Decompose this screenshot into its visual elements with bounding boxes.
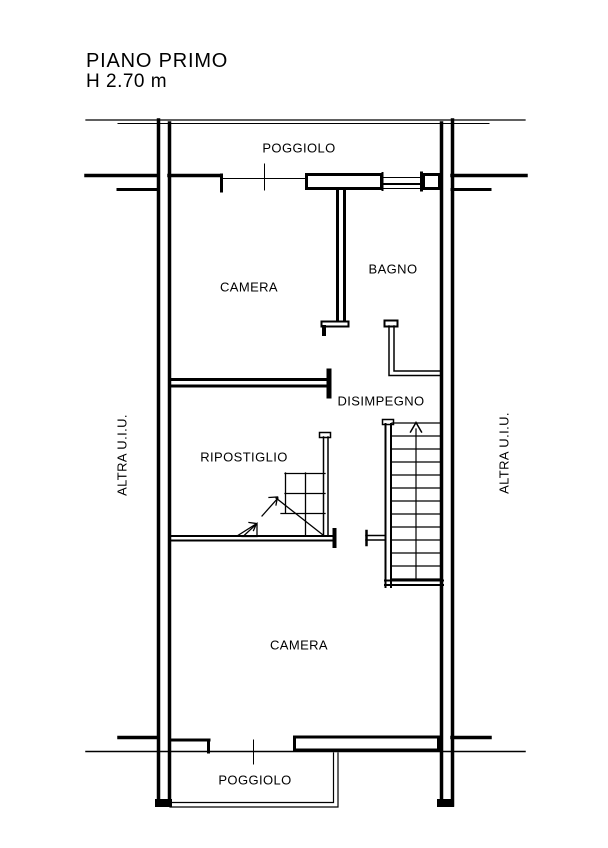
room-label-poggiolo-top: POGGIOLO <box>262 141 335 156</box>
unit-top-wall <box>169 164 440 191</box>
party-wall-right <box>437 120 454 807</box>
adjacent-unit-label-left: ALTRA U.I.U. <box>115 414 130 496</box>
boundary-lines <box>86 120 525 752</box>
neighbor-wall-stubs <box>86 176 526 738</box>
room-label-disimpegno: DISIMPEGNO <box>337 394 424 409</box>
room-label-camera-bottom: CAMERA <box>270 638 328 653</box>
room-label-ripostiglio: RIPOSTIGLIO <box>200 450 287 465</box>
party-wall-left <box>155 120 172 807</box>
stair-landing-stub <box>366 531 385 545</box>
stairwell <box>383 420 444 588</box>
unit-bottom-wall <box>171 737 439 764</box>
floor-plan-drawing <box>0 0 608 848</box>
room-label-poggiolo-bottom: POGGIOLO <box>218 773 291 788</box>
ripostiglio-bottom-wall <box>170 530 335 546</box>
camera-ripostiglio-wall <box>170 371 329 396</box>
bagno-walls <box>385 321 442 376</box>
room-label-bagno: BAGNO <box>369 262 418 277</box>
ripostiglio-right-wall <box>320 433 331 537</box>
floor-plan-page: PIANO PRIMO H 2.70 m <box>0 0 608 848</box>
winder-stairs <box>237 473 325 537</box>
camera-bagno-wall <box>322 190 349 334</box>
adjacent-unit-label-right: ALTRA U.I.U. <box>497 412 512 494</box>
room-label-camera-top: CAMERA <box>220 280 278 295</box>
window-symbol <box>382 173 422 190</box>
